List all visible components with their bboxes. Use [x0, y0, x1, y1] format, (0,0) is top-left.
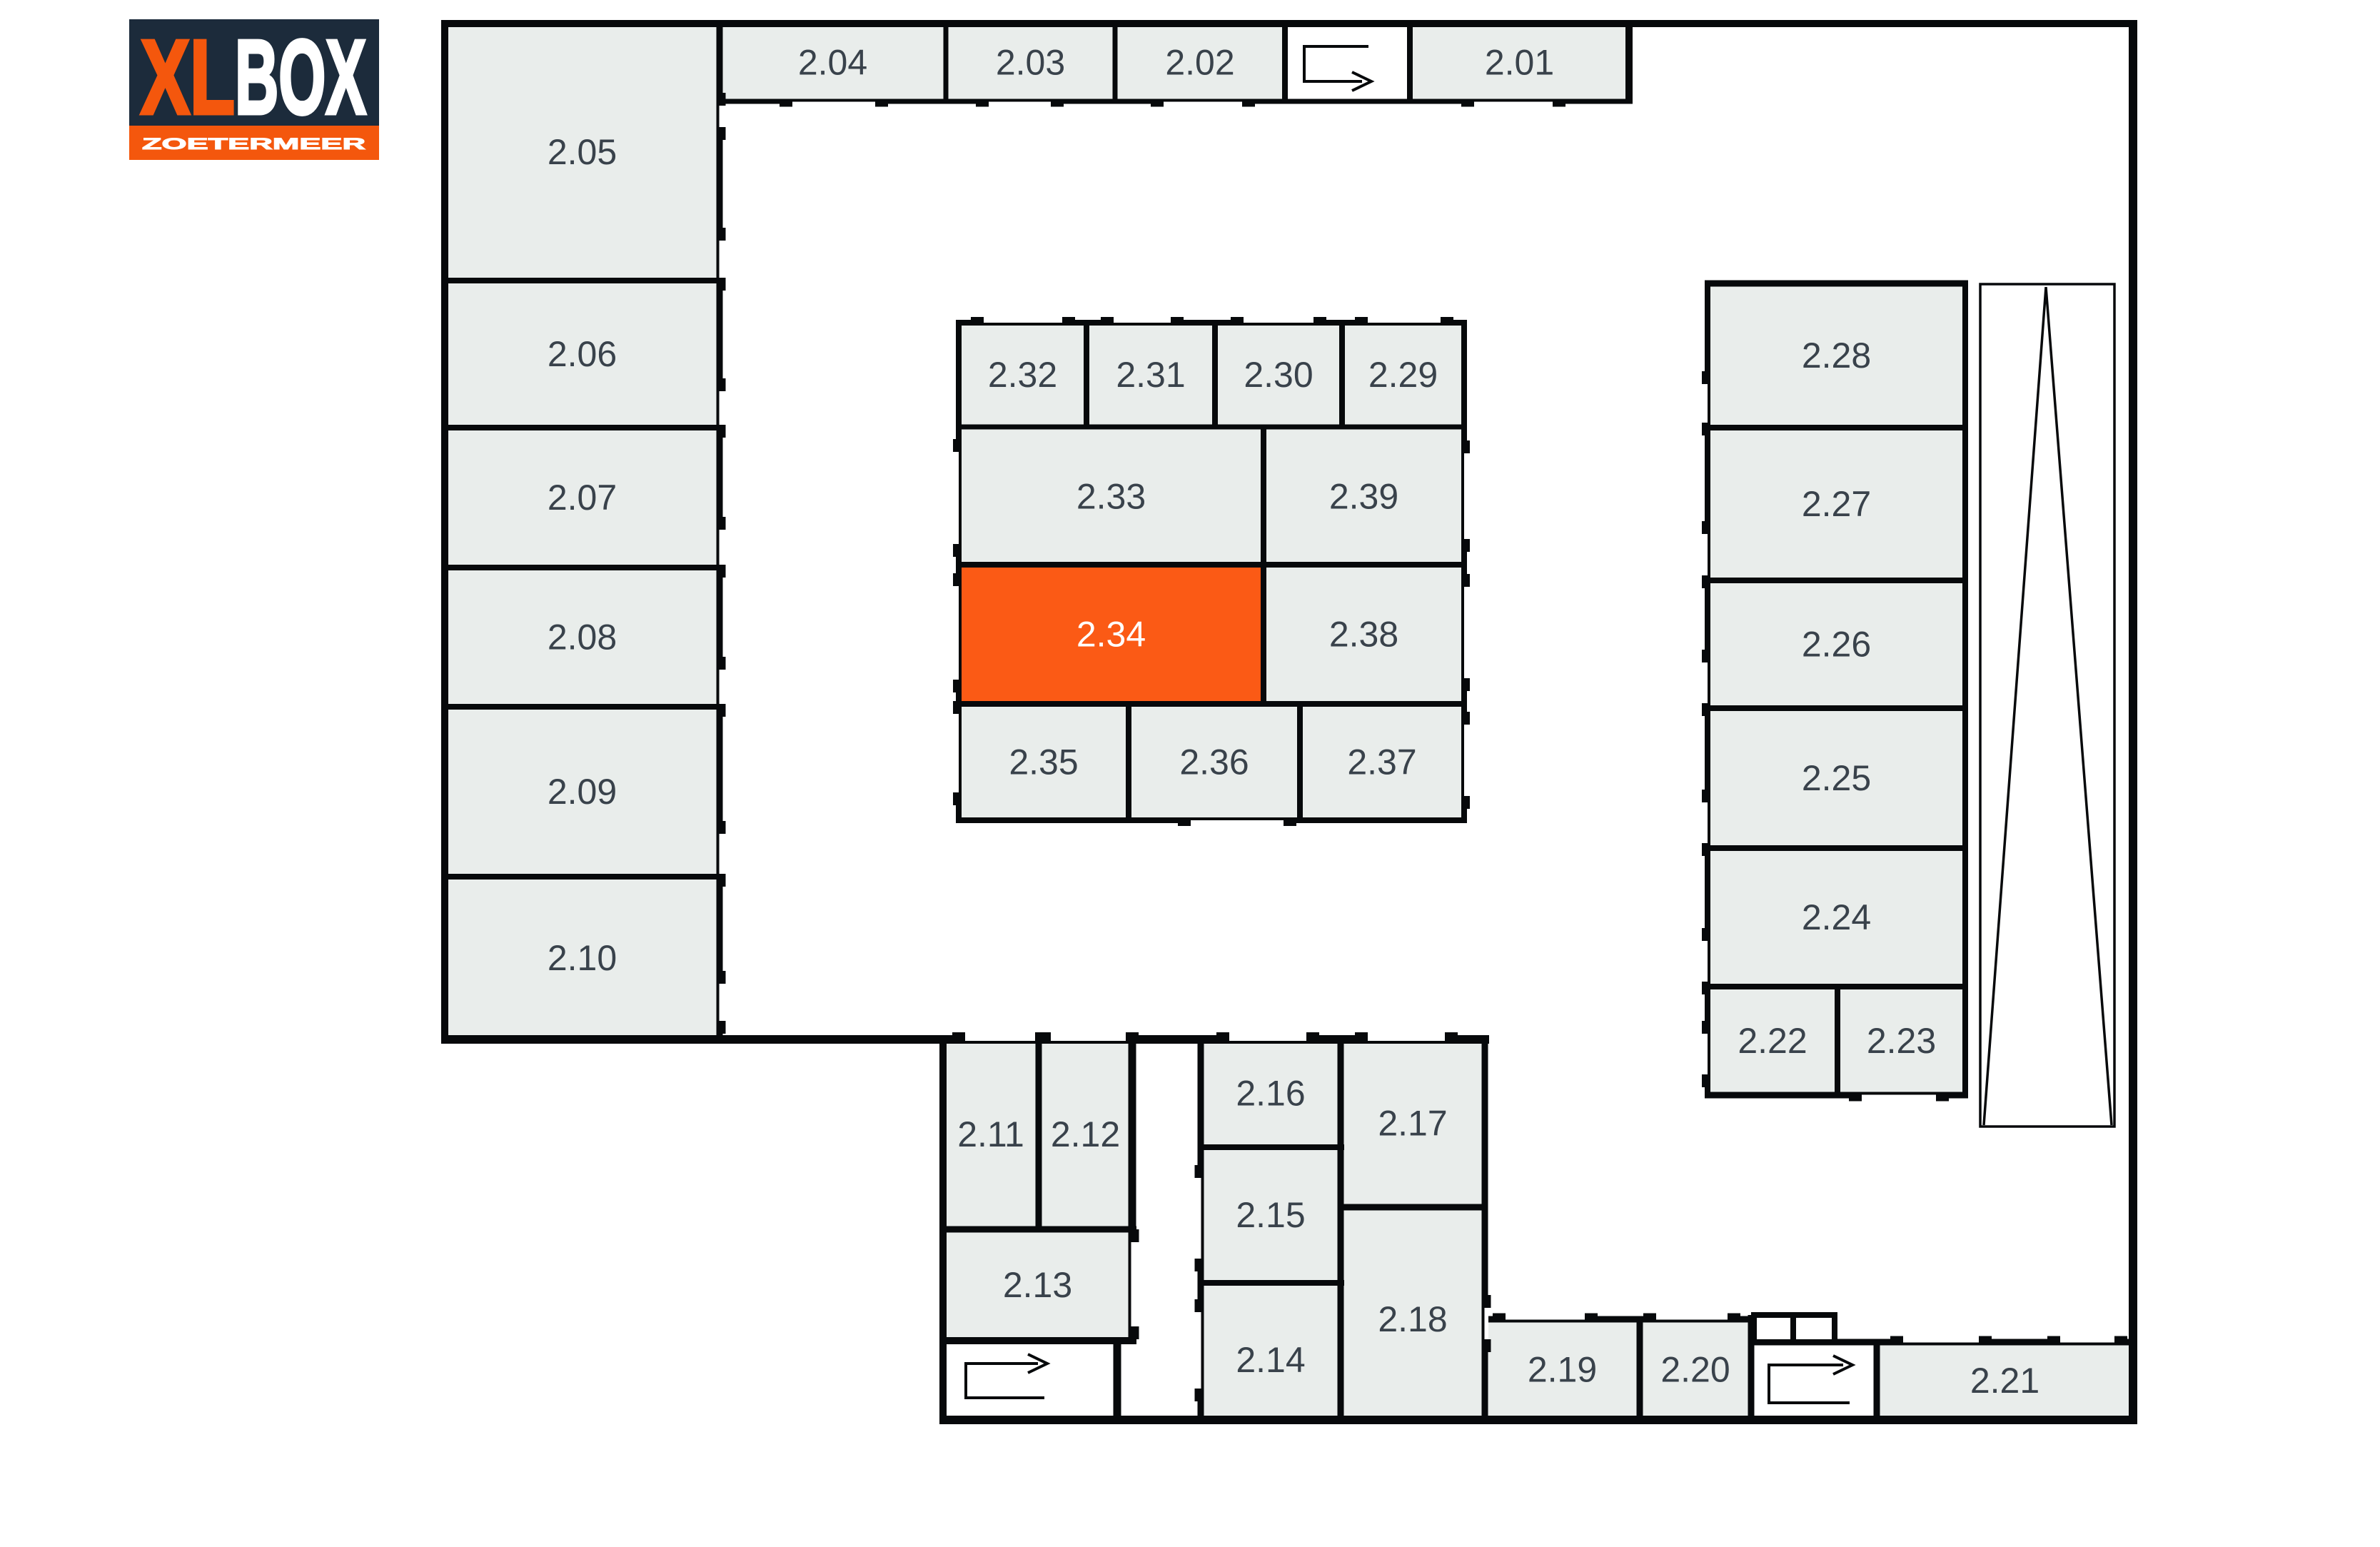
svg-text:2.02: 2.02 [1165, 43, 1234, 83]
svg-text:2.22: 2.22 [1738, 1021, 1807, 1061]
svg-text:2.27: 2.27 [1802, 484, 1871, 524]
svg-text:2.35: 2.35 [1009, 742, 1078, 782]
svg-text:2.12: 2.12 [1051, 1114, 1120, 1154]
svg-text:2.19: 2.19 [1528, 1350, 1597, 1390]
svg-text:2.08: 2.08 [548, 618, 617, 657]
svg-text:2.24: 2.24 [1802, 897, 1871, 937]
svg-text:2.17: 2.17 [1378, 1104, 1447, 1144]
svg-text:2.04: 2.04 [798, 43, 867, 83]
svg-text:2.31: 2.31 [1116, 355, 1185, 395]
svg-text:2.32: 2.32 [988, 355, 1057, 395]
svg-text:XL: XL [141, 19, 235, 136]
svg-text:2.30: 2.30 [1244, 355, 1313, 395]
svg-text:2.16: 2.16 [1236, 1074, 1305, 1114]
svg-text:2.09: 2.09 [548, 772, 617, 812]
svg-text:2.25: 2.25 [1802, 758, 1871, 798]
svg-text:2.28: 2.28 [1802, 336, 1871, 376]
svg-text:2.34: 2.34 [1076, 615, 1146, 655]
svg-text:2.11: 2.11 [957, 1114, 1024, 1154]
svg-text:2.15: 2.15 [1236, 1195, 1305, 1235]
svg-text:2.36: 2.36 [1179, 742, 1249, 782]
svg-text:2.37: 2.37 [1347, 742, 1416, 782]
svg-text:2.21: 2.21 [1970, 1361, 2039, 1401]
svg-text:2.13: 2.13 [1003, 1265, 1072, 1305]
svg-text:2.14: 2.14 [1236, 1340, 1305, 1380]
svg-text:2.05: 2.05 [548, 132, 617, 172]
svg-text:2.18: 2.18 [1378, 1299, 1447, 1339]
svg-text:2.06: 2.06 [548, 334, 617, 374]
svg-text:2.03: 2.03 [996, 43, 1065, 83]
svg-text:2.23: 2.23 [1867, 1021, 1936, 1061]
svg-text:2.26: 2.26 [1802, 625, 1871, 665]
svg-text:2.39: 2.39 [1329, 477, 1398, 517]
svg-text:2.07: 2.07 [548, 478, 617, 518]
svg-text:BOX: BOX [235, 19, 366, 136]
svg-text:2.10: 2.10 [548, 938, 617, 978]
svg-text:ZOETERMEER: ZOETERMEER [142, 135, 365, 153]
svg-text:2.38: 2.38 [1329, 615, 1398, 655]
svg-text:2.01: 2.01 [1485, 43, 1554, 83]
svg-text:2.33: 2.33 [1076, 477, 1146, 517]
svg-text:2.29: 2.29 [1368, 355, 1438, 395]
svg-text:2.20: 2.20 [1660, 1350, 1730, 1390]
